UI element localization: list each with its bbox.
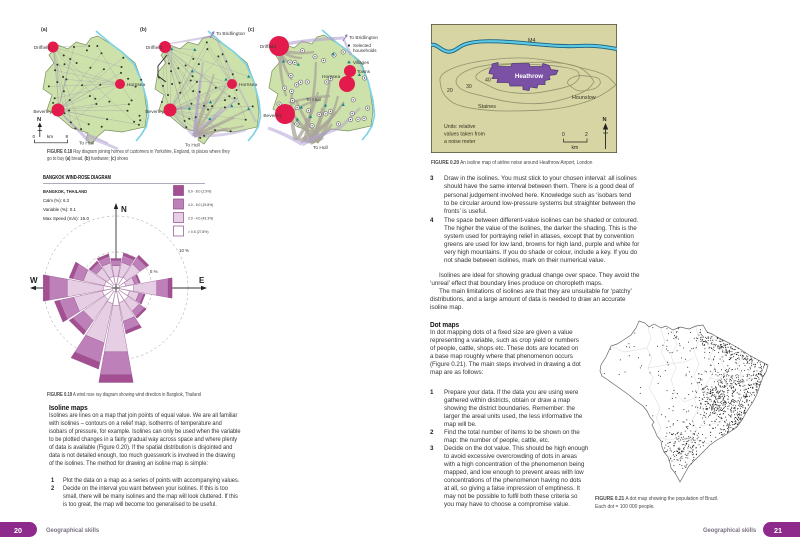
svg-text:Beverley: Beverley (145, 109, 164, 115)
svg-text:Heathrow: Heathrow (515, 73, 543, 80)
svg-text:Calm (%): 6.3: Calm (%): 6.3 (43, 198, 70, 203)
svg-text:E: E (199, 276, 205, 285)
svg-text:30: 30 (466, 84, 472, 90)
svg-text:To Hull: To Hull (306, 97, 321, 103)
svg-text:Units: relative: Units: relative (444, 124, 476, 130)
svg-text:To Bridlington: To Bridlington (216, 31, 245, 37)
svg-text:km: km (572, 145, 579, 151)
svg-text:(a): (a) (41, 27, 48, 33)
svg-text:households: households (353, 48, 377, 53)
svg-text:Driffield: Driffield (146, 45, 163, 51)
svg-text:N: N (121, 205, 127, 214)
svg-text:40: 40 (485, 78, 491, 84)
svg-text:Driffield: Driffield (34, 45, 51, 51)
svg-text:(b): (b) (140, 27, 147, 33)
svg-text:10 %: 10 % (179, 248, 189, 253)
svg-text:6.0 - 8.0 (2.9%): 6.0 - 8.0 (2.9%) (188, 189, 211, 193)
svg-text:Beverley: Beverley (263, 113, 282, 119)
svg-text:W: W (30, 276, 38, 285)
svg-text:To Hull: To Hull (79, 141, 94, 147)
svg-text:values taken from: values taken from (444, 132, 485, 138)
svg-text:Hornsea: Hornsea (239, 82, 257, 88)
svg-text:20: 20 (447, 88, 453, 94)
svg-text:To Hull: To Hull (313, 145, 328, 151)
svg-text:Hornsea: Hornsea (322, 74, 340, 80)
svg-text:2: 2 (585, 132, 588, 138)
svg-text:Towns: Towns (357, 69, 371, 74)
svg-text:N: N (37, 117, 41, 123)
svg-text:4.0 - 6.0 (19.8%): 4.0 - 6.0 (19.8%) (188, 203, 213, 207)
svg-text:8: 8 (66, 134, 69, 139)
svg-text:BANGKOK, THAILAND: BANGKOK, THAILAND (43, 189, 87, 194)
svg-text:BANGKOK WIND-ROSE DIAGRAM: BANGKOK WIND-ROSE DIAGRAM (43, 175, 111, 181)
svg-text:Hounslow: Hounslow (572, 95, 596, 101)
svg-text:Variable (%): 0.1: Variable (%): 0.1 (43, 207, 77, 212)
svg-text:Hornsea: Hornsea (127, 82, 145, 88)
svg-text:Villages: Villages (353, 60, 370, 65)
svg-text:Driffield: Driffield (260, 44, 277, 50)
svg-text:km: km (47, 134, 53, 139)
svg-text:N: N (603, 117, 607, 123)
svg-text:5 %: 5 % (150, 269, 158, 274)
svg-text:To Hull: To Hull (185, 143, 200, 149)
svg-text:Beverley: Beverley (33, 109, 52, 115)
svg-text:a noise meter: a noise meter (444, 139, 476, 145)
svg-text:Staines: Staines (478, 104, 496, 110)
svg-text:To Bridlington: To Bridlington (349, 35, 378, 41)
svg-text:0: 0 (33, 134, 36, 139)
svg-text:Max Speed (m/s): 15.0: Max Speed (m/s): 15.0 (43, 216, 90, 221)
svg-text:(c): (c) (248, 27, 255, 33)
svg-text:0: 0 (562, 132, 565, 138)
svg-text:> 0.5 (27.8%): > 0.5 (27.8%) (188, 230, 208, 234)
svg-text:2.0 - 4.0 (43.3%): 2.0 - 4.0 (43.3%) (188, 216, 213, 220)
svg-text:M4: M4 (528, 38, 536, 44)
